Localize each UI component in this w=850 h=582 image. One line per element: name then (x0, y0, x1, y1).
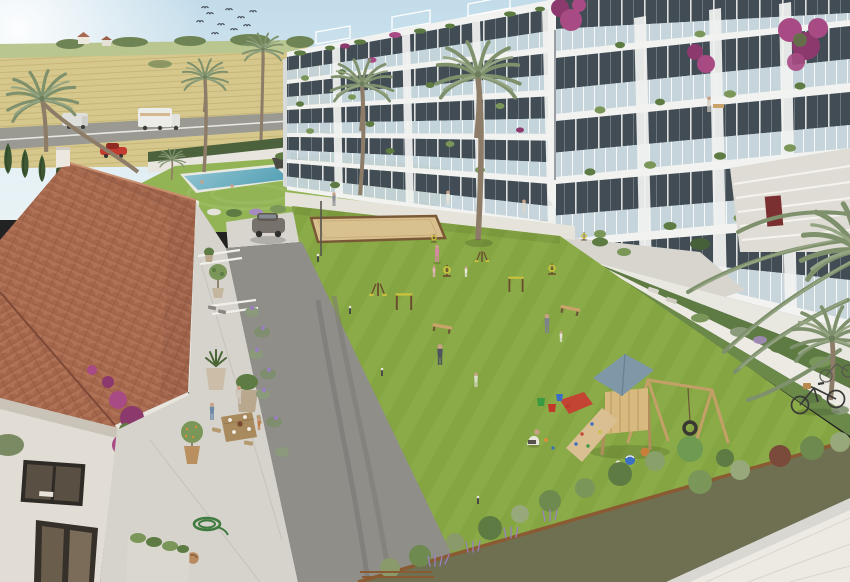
render-scene (0, 0, 850, 582)
red-leaf-shrub (769, 445, 791, 467)
house-door (34, 520, 98, 582)
house-window (21, 460, 86, 506)
swimmer (200, 180, 203, 183)
bougainvillea (340, 43, 350, 48)
bougainvillea (389, 32, 401, 38)
architectural-rendering (0, 0, 850, 582)
chimney (56, 147, 70, 168)
balcony-table (713, 104, 724, 108)
entrance-tree (690, 238, 710, 250)
petanque-court (311, 216, 445, 242)
swimmer (230, 184, 233, 187)
bike-basket (803, 383, 811, 389)
